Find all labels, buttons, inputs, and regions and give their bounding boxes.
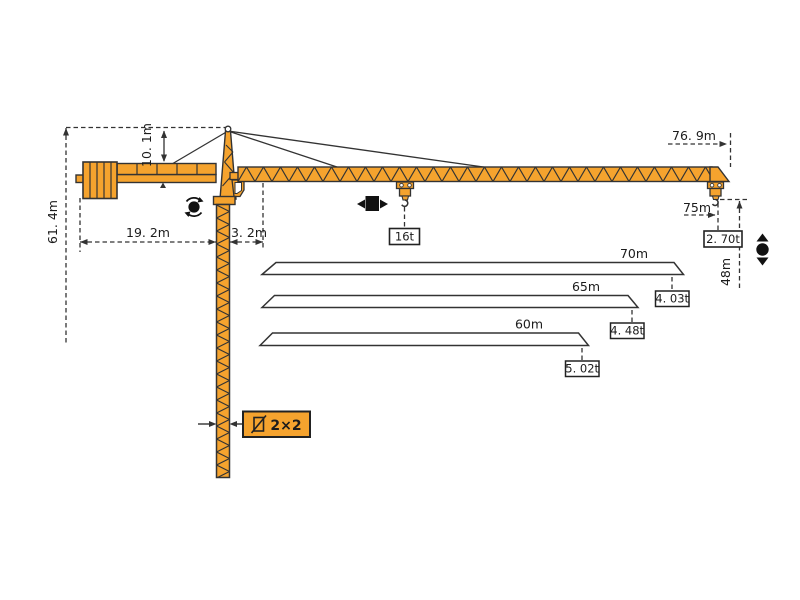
jib-tip <box>710 167 729 182</box>
mast <box>217 205 230 478</box>
max-capacity-label: 16t <box>395 230 415 244</box>
load-bar-65m: 65m 4. 48t <box>262 279 645 339</box>
counterweight <box>83 162 117 199</box>
tower-head-height-label: 10. 1m <box>139 123 154 167</box>
slewing-platform <box>214 197 236 205</box>
jib <box>238 167 729 182</box>
tip-capacity-label: 2. 70t <box>706 232 740 246</box>
max-radius-label: 75m <box>683 200 711 215</box>
capacity-60m-label: 5. 02t <box>565 362 599 376</box>
trolley-hook-mid <box>397 182 414 206</box>
counter-jib-length-label: 19. 2m <box>126 225 170 240</box>
load-bar-60m: 60m 5. 02t <box>260 317 600 377</box>
radius-65m-label: 65m <box>572 279 600 294</box>
trolley-left-right-icon <box>357 196 388 211</box>
total-height-label: 61. 4m <box>45 200 60 244</box>
jib-root-offset-label: 3. 2m <box>231 225 267 240</box>
hook-height-label: 48m <box>718 258 733 286</box>
hook-up-down-icon <box>756 234 768 266</box>
crane-diagram: 2×2 70m 4. 03t 65m 4. 48t 60m 5. 02t 16t… <box>0 0 800 600</box>
jib-span-label: 76. 9m <box>672 128 716 143</box>
capacity-65m-label: 4. 48t <box>610 324 644 338</box>
tip-capacity-callout: 2. 70t <box>704 231 742 247</box>
hook-mid <box>402 200 408 206</box>
mast-section-label: 2×2 <box>270 418 301 434</box>
pendant-lines <box>172 131 487 168</box>
apex-pin <box>225 126 231 132</box>
hook-tip <box>713 200 719 206</box>
mast-section-callout: 2×2 <box>198 412 310 438</box>
crane-diagram-page: 2×2 70m 4. 03t 65m 4. 48t 60m 5. 02t 16t… <box>0 0 800 600</box>
counter-jib-upper-chord <box>117 164 216 175</box>
radius-70m-label: 70m <box>620 246 648 261</box>
capacity-70m-label: 4. 03t <box>655 292 689 306</box>
radius-60m-label: 60m <box>515 317 543 332</box>
rotation-icon <box>185 197 204 217</box>
max-capacity-callout: 16t <box>390 229 420 245</box>
